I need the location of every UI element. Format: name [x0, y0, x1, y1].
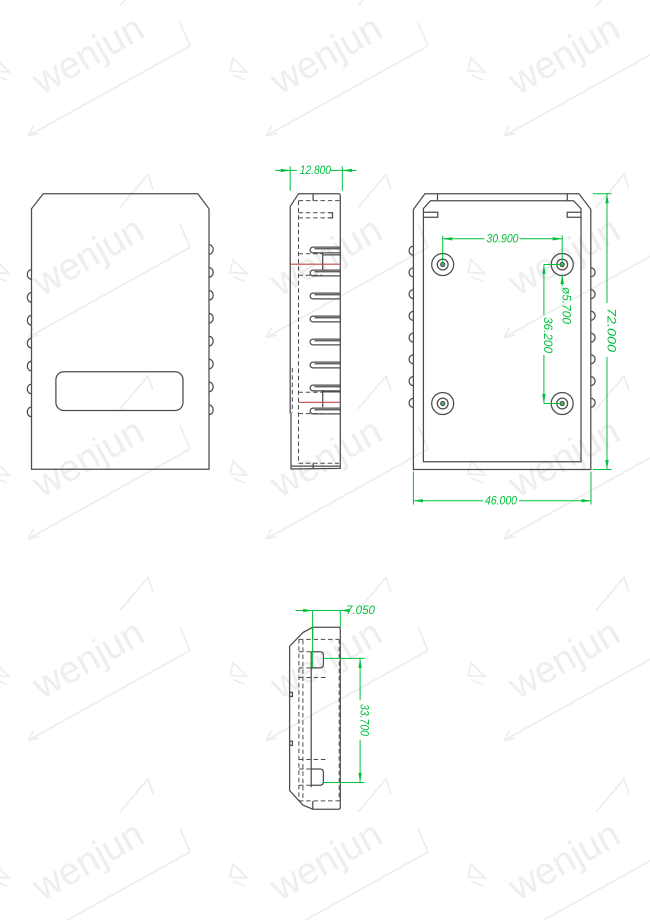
svg-text:46.000: 46.000 [485, 495, 518, 507]
svg-text:7.050: 7.050 [346, 605, 376, 617]
svg-text:12.800: 12.800 [300, 165, 332, 177]
svg-text:30.900: 30.900 [487, 233, 520, 245]
svg-text:36.200: 36.200 [541, 317, 553, 354]
svg-text:33.700: 33.700 [357, 704, 369, 737]
svg-text:ø5.700: ø5.700 [560, 287, 572, 325]
svg-text:72.000: 72.000 [604, 308, 616, 353]
